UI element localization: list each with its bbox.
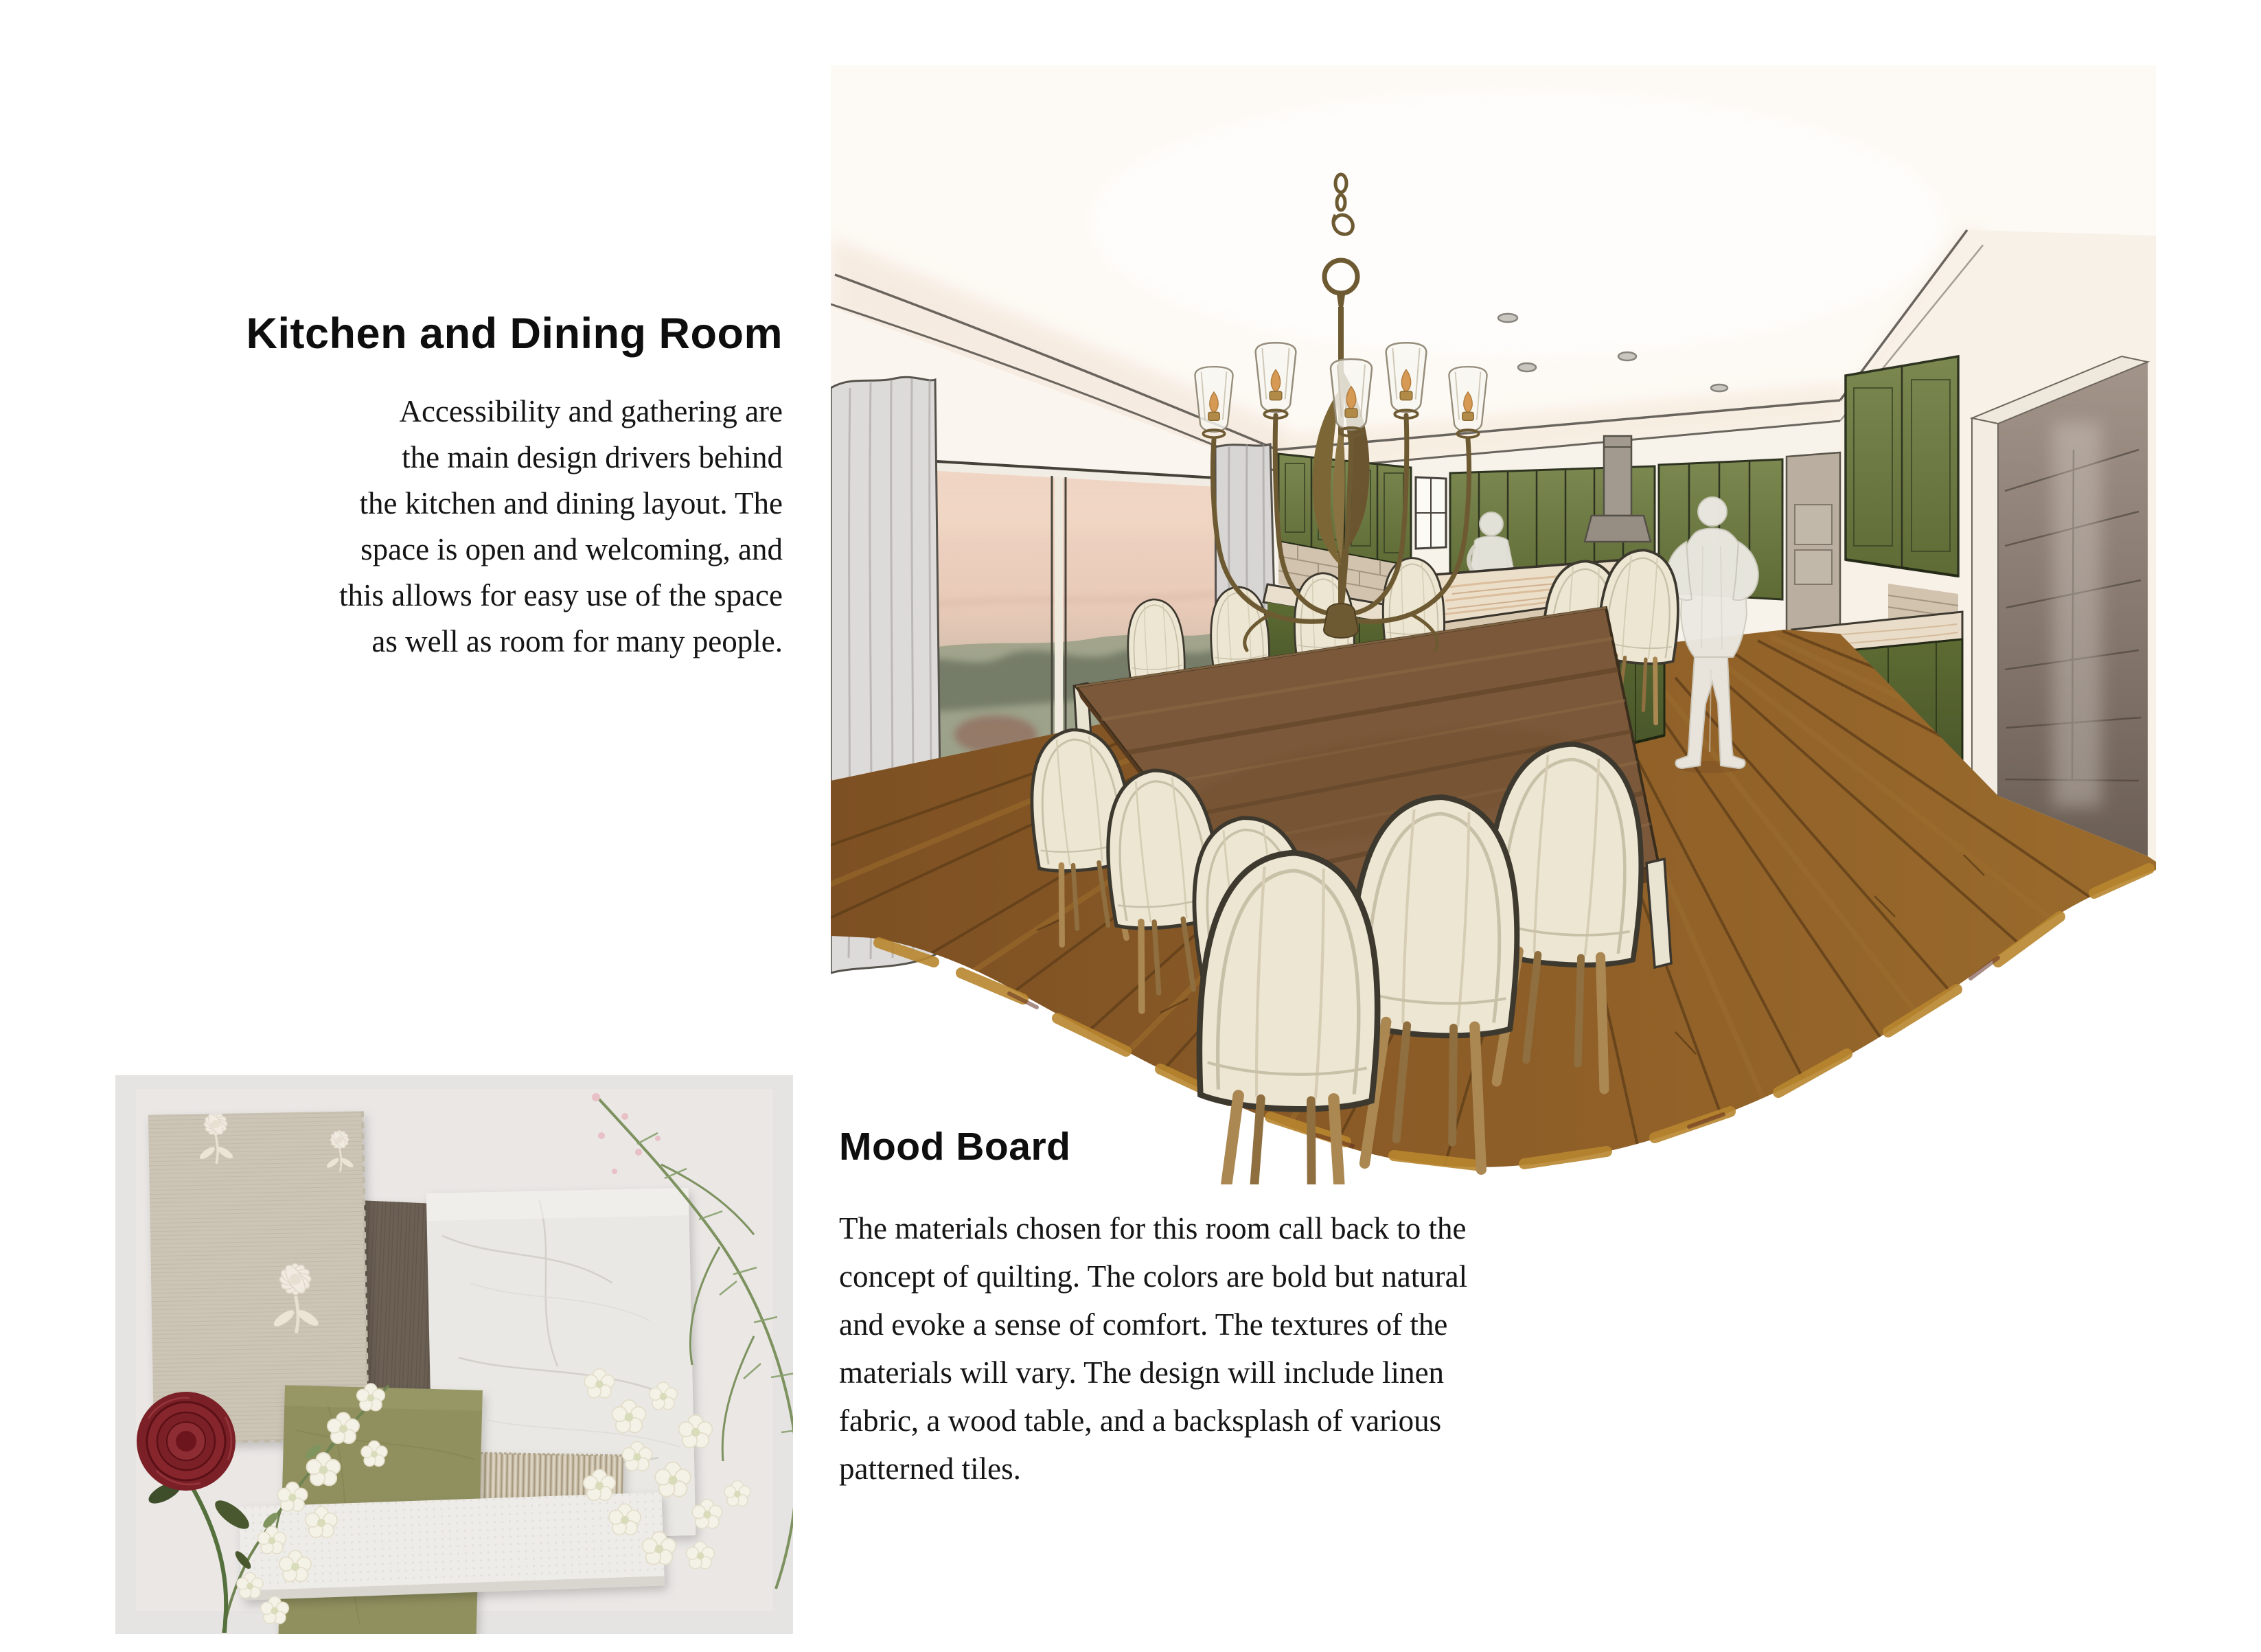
- mood-board-svg: [115, 1075, 793, 1634]
- kitchen-section-paragraph: Accessibility and gathering are the main…: [163, 389, 783, 665]
- mood-section-paragraph: The materials chosen for this room call …: [839, 1204, 1752, 1493]
- kitchen-rendering-svg: [831, 65, 2156, 1184]
- mood-section-title: Mood Board: [839, 1126, 1752, 1169]
- doorway-dark-room: [1972, 356, 2148, 856]
- kitchen-section-text: Kitchen and Dining Room Accessibility an…: [163, 310, 783, 665]
- kitchen-section-title: Kitchen and Dining Room: [163, 310, 783, 357]
- mood-board-photo: [115, 1075, 793, 1634]
- kitchen-dining-rendering: [831, 65, 2156, 1184]
- mood-section-text: Mood Board The materials chosen for this…: [839, 1126, 1752, 1493]
- portfolio-page: { "page": {"background": "#ffffff"}, "ki…: [0, 0, 2261, 1652]
